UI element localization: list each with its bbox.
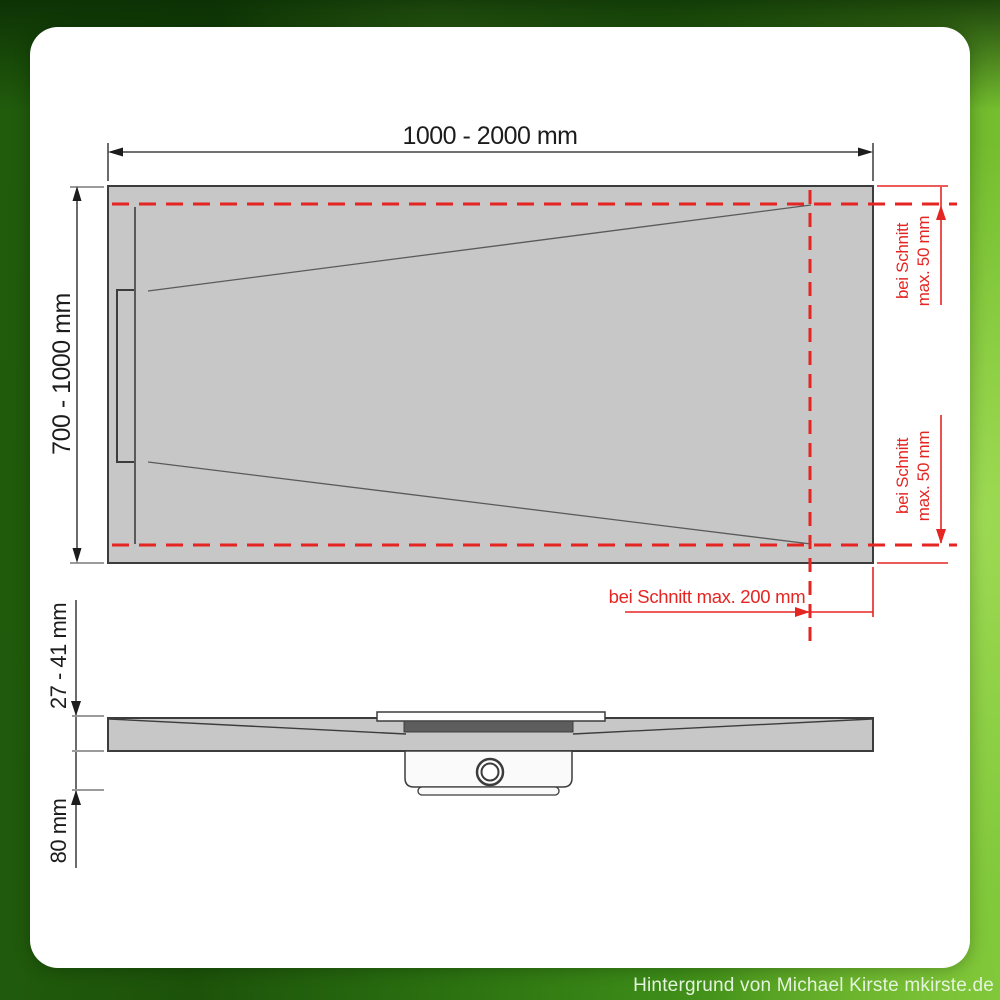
red-arrow-up	[936, 205, 946, 220]
arrow-right	[858, 148, 873, 157]
cut-right-bottom-label: bei Schnitt max. 50 mm	[892, 401, 934, 551]
drain-height-dimension	[71, 790, 104, 805]
depth-dimension-label: 700 - 1000 mm	[48, 264, 76, 484]
drain-outlet-inner	[482, 764, 499, 781]
cut-right-bottom-line2: max. 50 mm	[913, 401, 934, 551]
technical-drawing	[0, 0, 1000, 1000]
cut-right-top-line2: max. 50 mm	[913, 186, 934, 336]
red-arrow-down	[936, 529, 946, 544]
thickness-dimension-label: 27 - 41 mm	[47, 576, 71, 736]
tray-outline	[108, 186, 873, 563]
width-dimension-label: 1000 - 2000 mm	[340, 122, 640, 150]
arrow-down	[71, 701, 81, 716]
cut-right-top-line1: bei Schnitt	[892, 186, 913, 336]
drain-housing-lip	[418, 787, 559, 795]
top-view-tray	[108, 186, 873, 563]
drain-grate-frame	[377, 712, 605, 721]
side-view-tray	[108, 712, 873, 795]
arrow-left	[108, 148, 123, 157]
watermark-credit: Hintergrund von Michael Kirste mkirste.d…	[633, 972, 994, 1000]
cut-right-top-label: bei Schnitt max. 50 mm	[892, 186, 934, 336]
thickness-dimension	[71, 600, 104, 868]
cut-right-bottom-line1: bei Schnitt	[892, 401, 913, 551]
drain-height-dimension-label: 80 mm	[47, 751, 71, 911]
arrow-up	[71, 790, 81, 805]
drain-channel-side	[404, 721, 573, 732]
cut-bottom-dimension-label: bei Schnitt max. 200 mm	[597, 585, 817, 609]
arrow-up	[73, 186, 82, 201]
arrow-down	[73, 548, 82, 563]
